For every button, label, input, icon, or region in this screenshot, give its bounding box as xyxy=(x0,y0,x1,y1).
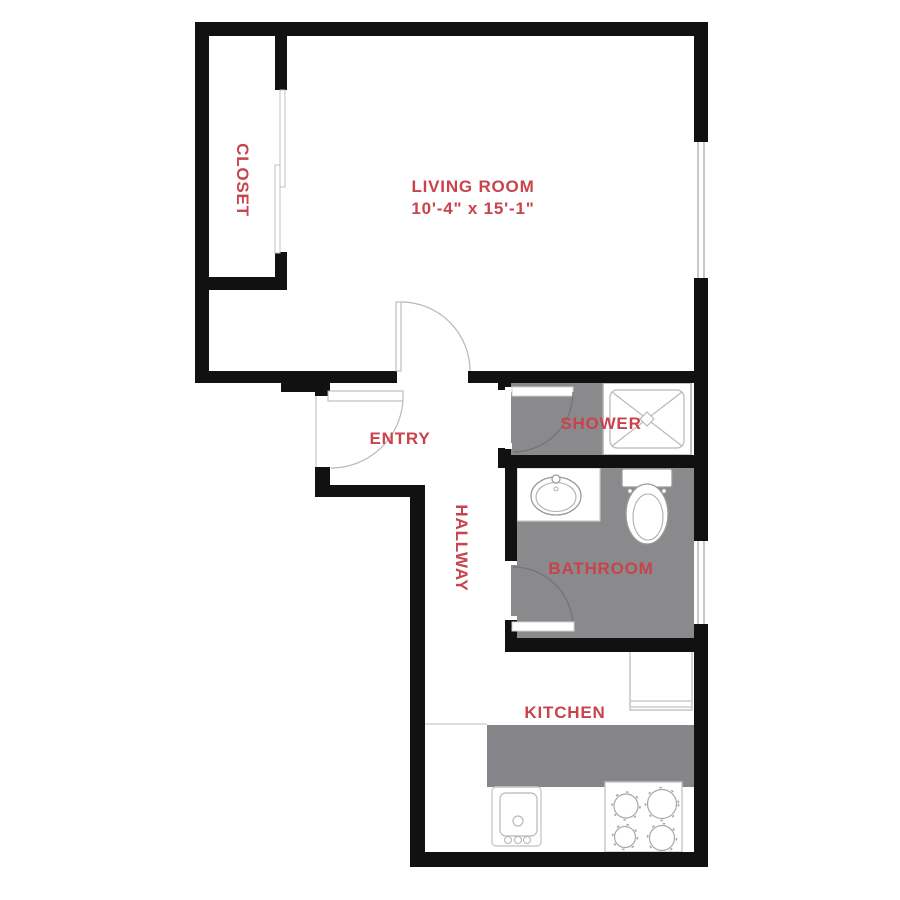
wall-plan-bottom xyxy=(410,852,708,867)
wall-entry-bottom xyxy=(315,485,425,497)
wall-livingroom-bottom-right xyxy=(468,371,708,383)
floor-plan-canvas: CLOSET LIVING ROOM 10'-4" x 15'-1" ENTRY… xyxy=(0,0,900,900)
wall-hallway-left xyxy=(410,485,425,867)
wall-closet-divider-top xyxy=(275,35,287,90)
wall-left xyxy=(195,22,209,383)
wall-bathroom-bottom xyxy=(505,638,708,652)
wall-bathroom-left-top xyxy=(505,468,517,565)
room-label-hallway: HALLWAY xyxy=(450,504,472,591)
kitchen-sink-icon xyxy=(492,787,541,846)
bathroom-window xyxy=(694,541,708,624)
living-room-door-icon xyxy=(396,302,470,371)
living-room-dimensions: 10'-4" x 15'-1" xyxy=(411,198,534,220)
living-room-window xyxy=(694,142,708,278)
wall-right-lower-b xyxy=(694,624,708,867)
room-label-kitchen: KITCHEN xyxy=(524,702,605,724)
room-label-shower: SHOWER xyxy=(560,413,641,435)
wall-right-upper-b xyxy=(694,278,708,383)
wall-top xyxy=(195,22,708,36)
room-label-living-room: LIVING ROOM 10'-4" x 15'-1" xyxy=(411,176,534,220)
room-label-entry: ENTRY xyxy=(370,428,431,450)
wall-right-upper-a xyxy=(694,22,708,142)
closet-sliding-door-icon xyxy=(275,90,285,253)
room-label-bathroom: BATHROOM xyxy=(548,558,653,580)
wall-closet-bottom xyxy=(195,277,287,290)
kitchen-counter xyxy=(487,725,694,787)
living-room-name: LIVING ROOM xyxy=(411,176,534,198)
room-label-closet: CLOSET xyxy=(231,143,253,217)
wall-shower-bathroom xyxy=(498,455,698,468)
bathroom-sink-icon xyxy=(517,468,600,521)
stove-icon xyxy=(605,782,682,853)
floor-plan-drawing xyxy=(0,0,900,900)
refrigerator-icon xyxy=(630,648,692,710)
wall-livingroom-bottom-left xyxy=(195,371,397,383)
